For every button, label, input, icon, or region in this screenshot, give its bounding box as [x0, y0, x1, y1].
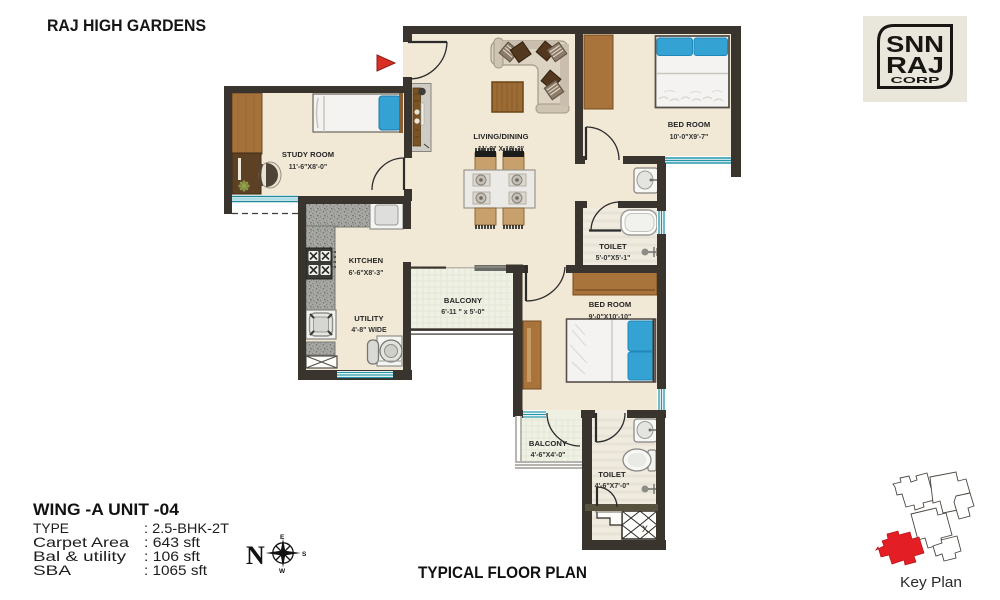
svg-text:6'-6"X8'-3": 6'-6"X8'-3" [349, 270, 384, 277]
svg-text:WING -A UNIT -04: WING -A UNIT -04 [33, 500, 180, 519]
svg-text:10'-0"X9'-7": 10'-0"X9'-7" [670, 134, 709, 141]
svg-text:SBA: SBA [33, 562, 72, 578]
svg-text:TOILET: TOILET [598, 470, 626, 479]
svg-text:9'-0"X10'-10": 9'-0"X10'-10" [589, 314, 632, 321]
svg-text:BALCONY: BALCONY [529, 439, 567, 448]
svg-text:BED ROOM: BED ROOM [668, 120, 711, 129]
svg-text:N: N [246, 541, 265, 570]
svg-text:KITCHEN: KITCHEN [349, 256, 383, 265]
svg-text:S: S [302, 551, 307, 558]
svg-text:4'-6"X4'-0": 4'-6"X4'-0" [531, 452, 566, 459]
svg-text:X: X [642, 524, 648, 534]
svg-text:W: W [279, 568, 286, 575]
svg-text:E: E [280, 534, 285, 541]
svg-text:BALCONY: BALCONY [444, 296, 482, 305]
svg-text:LIVING/DINING: LIVING/DINING [473, 132, 528, 141]
svg-text:TYPICAL FLOOR PLAN: TYPICAL FLOOR PLAN [418, 563, 587, 582]
svg-text:4'-6"X7'-0": 4'-6"X7'-0" [595, 483, 630, 490]
svg-text:11'-6"X8'-0": 11'-6"X8'-0" [289, 164, 327, 171]
svg-text:TOILET: TOILET [599, 242, 627, 251]
svg-text:RAJ HIGH GARDENS: RAJ HIGH GARDENS [47, 16, 206, 35]
svg-text:Key Plan: Key Plan [900, 574, 962, 591]
svg-text:BED ROOM: BED ROOM [589, 300, 632, 309]
svg-text:6'-11 " x 5'-0": 6'-11 " x 5'-0" [441, 309, 484, 316]
svg-text:5'-0"X5'-1": 5'-0"X5'-1" [596, 255, 631, 262]
svg-text:: 1065 sft: : 1065 sft [144, 562, 207, 578]
svg-text:UTILITY: UTILITY [354, 314, 383, 323]
svg-text:CORP: CORP [891, 75, 941, 85]
svg-text:4'-8" WIDE: 4'-8" WIDE [351, 327, 387, 334]
svg-text:11'-0" X 18'-3": 11'-0" X 18'-3" [478, 146, 524, 153]
svg-text:STUDY ROOM: STUDY ROOM [282, 150, 334, 159]
